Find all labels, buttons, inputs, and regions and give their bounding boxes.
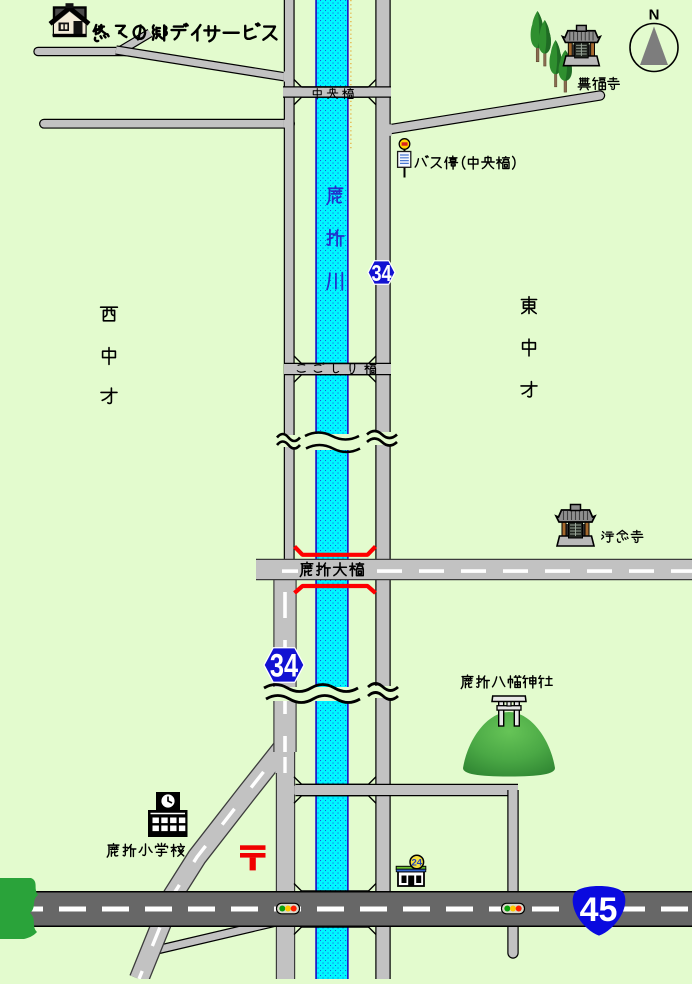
svg-text:N: N — [649, 7, 660, 24]
svg-text:45: 45 — [580, 891, 618, 929]
svg-text:34: 34 — [371, 261, 391, 287]
svg-text:34: 34 — [270, 649, 299, 685]
svg-text:24: 24 — [412, 858, 423, 869]
